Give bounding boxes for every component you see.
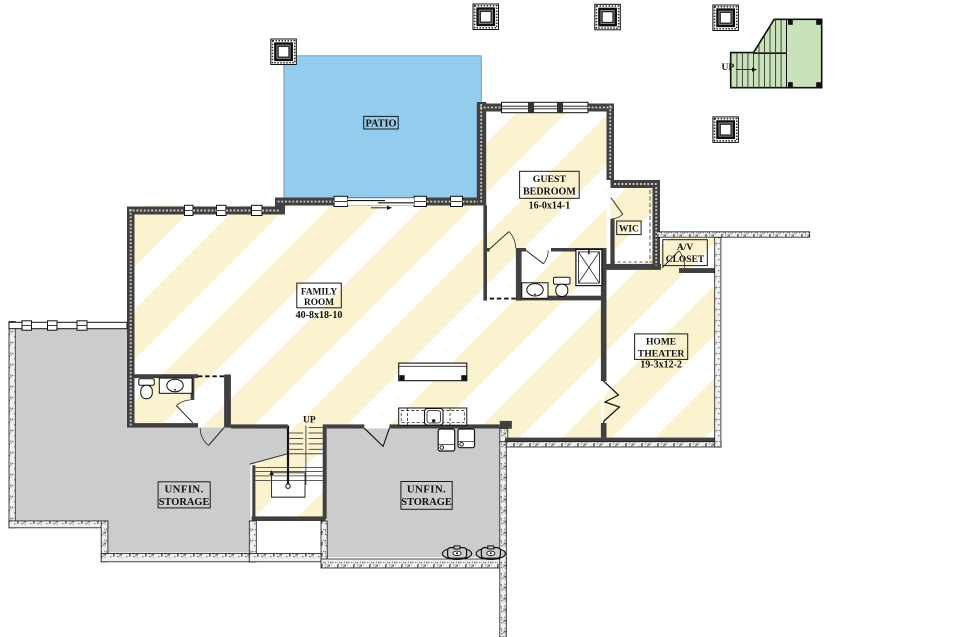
- svg-text:19-3x12-2: 19-3x12-2: [640, 360, 682, 371]
- svg-text:UNFIN.: UNFIN.: [407, 484, 446, 496]
- svg-text:FAMILY: FAMILY: [301, 287, 337, 297]
- svg-text:PATIO: PATIO: [365, 118, 396, 129]
- svg-text:40-8x18-10: 40-8x18-10: [296, 310, 343, 321]
- svg-text:16-0x14-1: 16-0x14-1: [529, 200, 571, 211]
- svg-text:HOME: HOME: [646, 337, 676, 347]
- svg-text:UP: UP: [722, 63, 735, 73]
- svg-text:GUEST: GUEST: [533, 174, 567, 185]
- svg-text:THEATER: THEATER: [638, 348, 686, 359]
- svg-text:UNFIN.: UNFIN.: [164, 484, 203, 496]
- svg-text:UP: UP: [303, 416, 316, 426]
- svg-text:CLOSET: CLOSET: [666, 255, 705, 265]
- svg-text:ROOM: ROOM: [304, 298, 334, 308]
- svg-text:BEDROOM: BEDROOM: [523, 187, 576, 198]
- svg-text:WIC: WIC: [619, 225, 639, 235]
- svg-text:STORAGE: STORAGE: [401, 497, 452, 508]
- svg-text:STORAGE: STORAGE: [159, 497, 210, 508]
